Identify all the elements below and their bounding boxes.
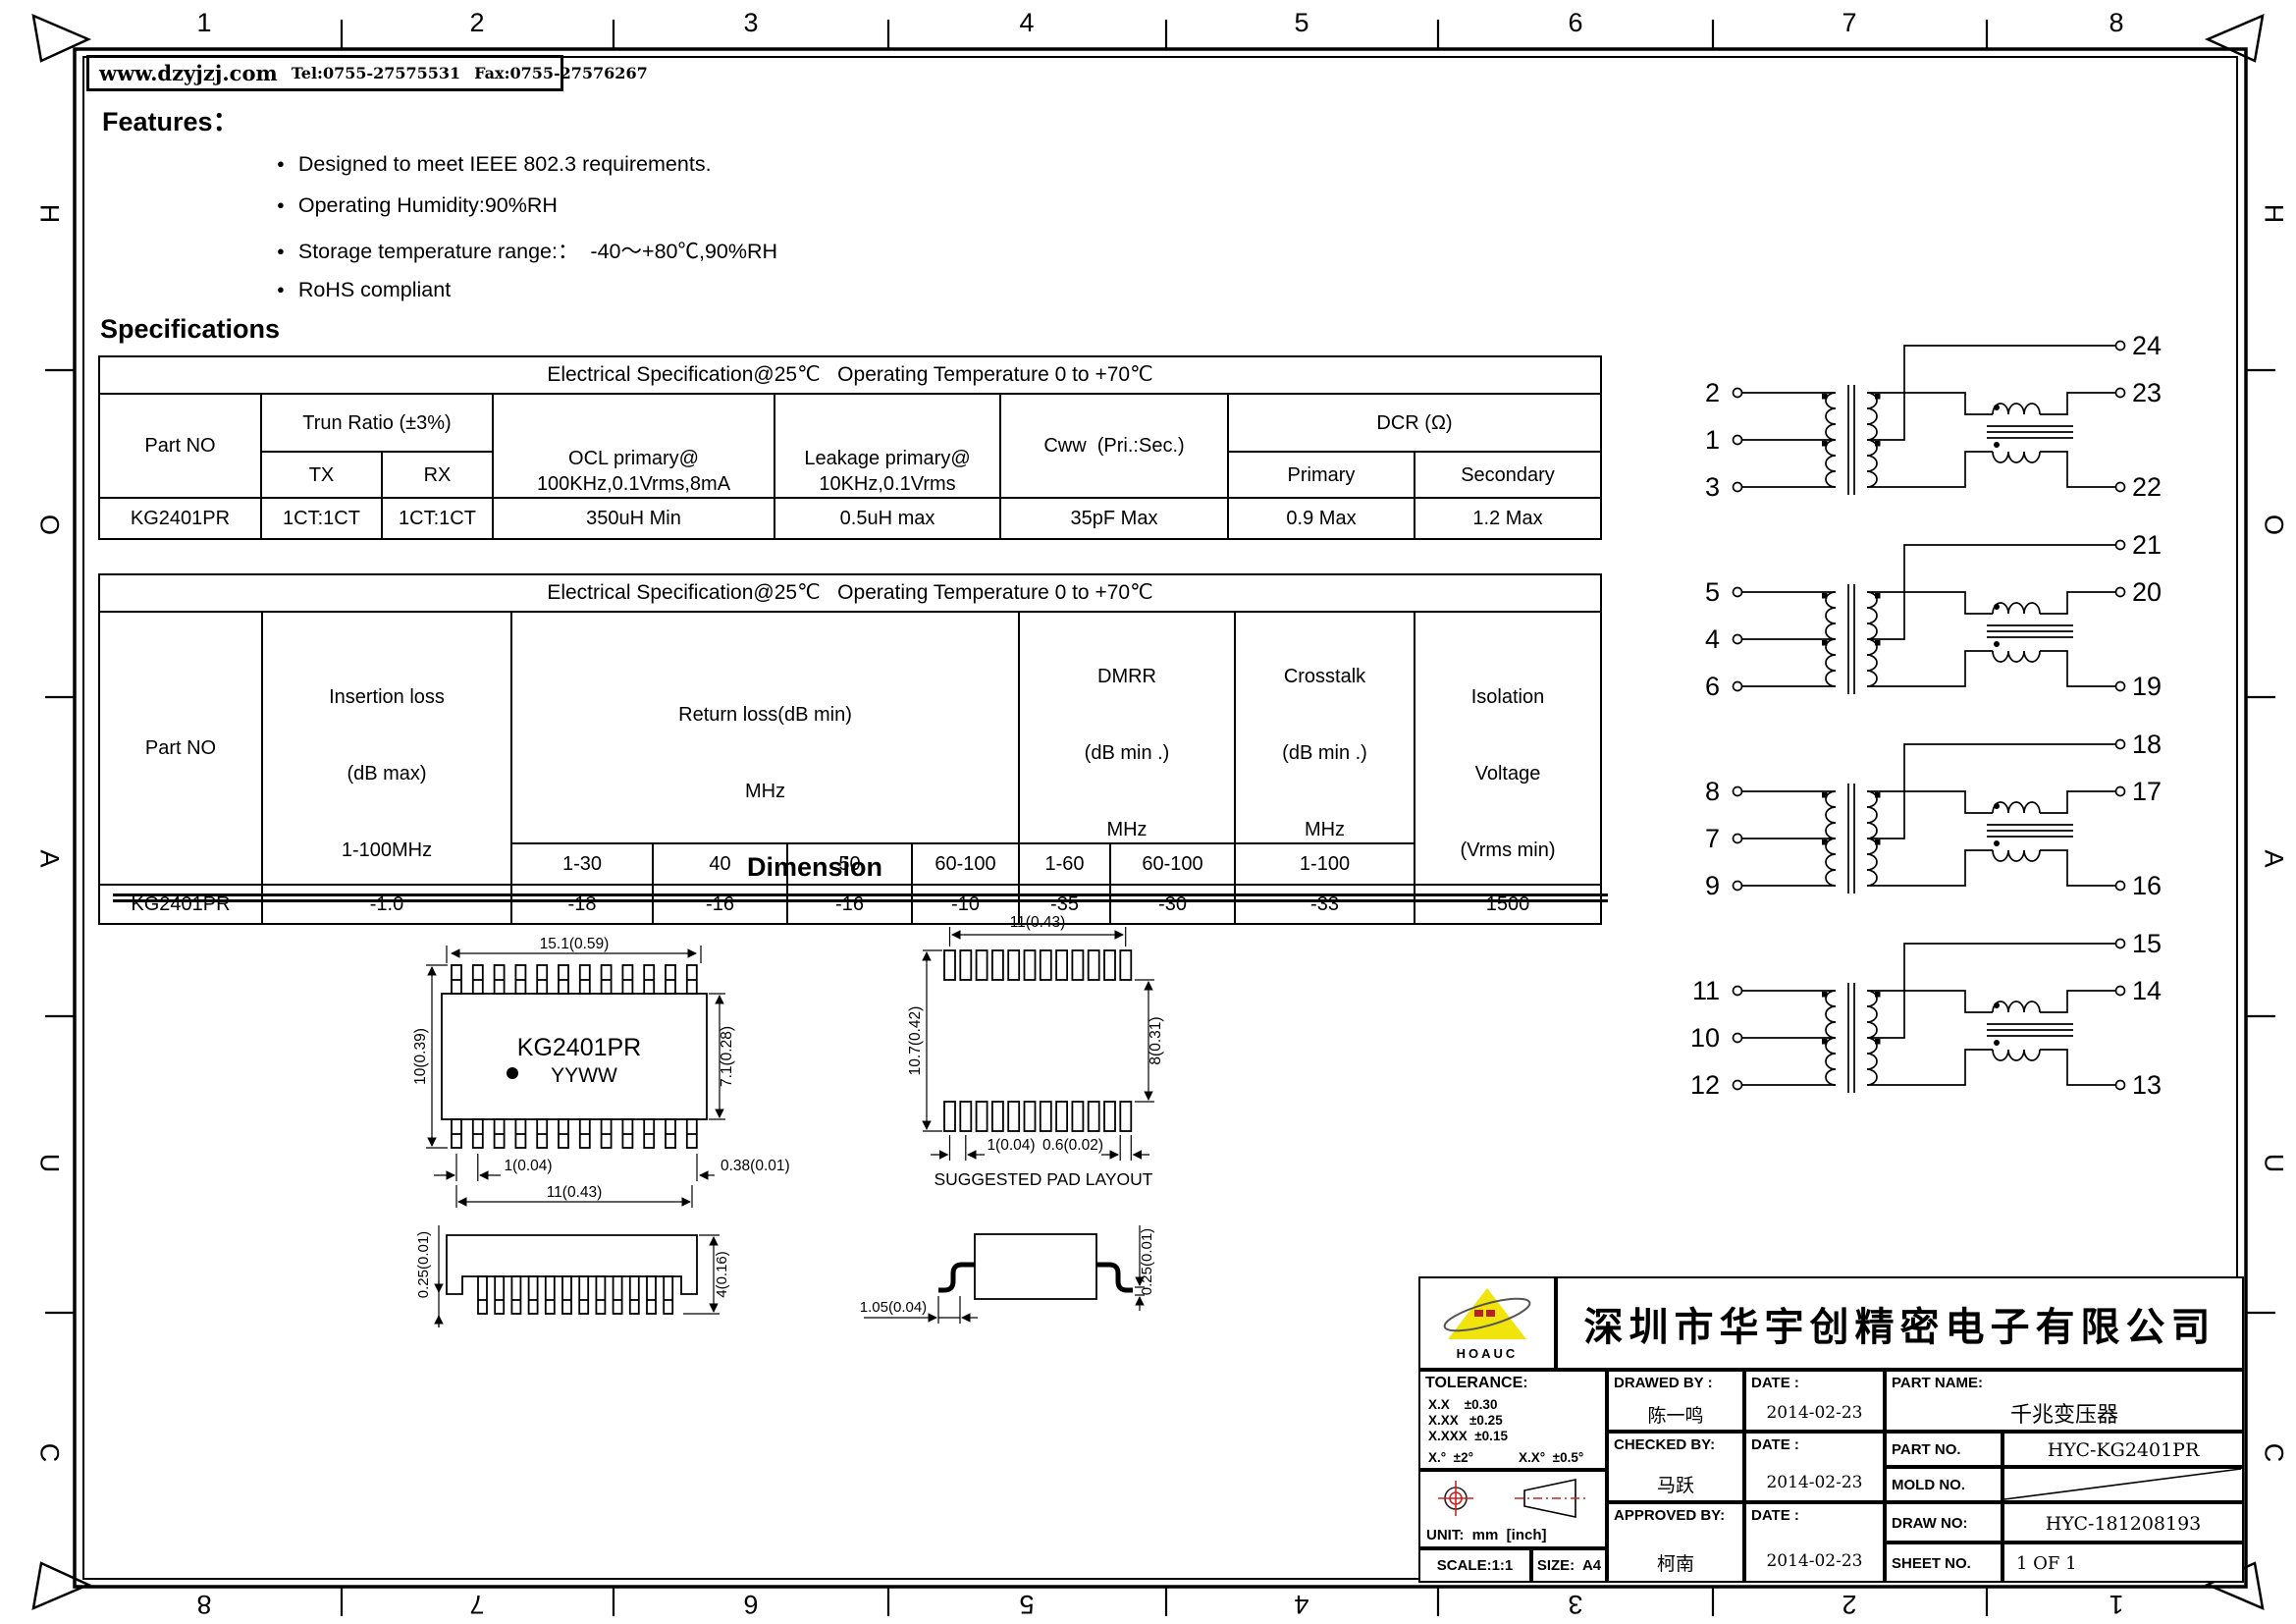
svg-text:18: 18: [2132, 730, 2162, 759]
dimension-divider: [113, 893, 1608, 902]
pin-rect: [960, 1102, 971, 1131]
table2-sub-dmrr-1-60: 1-60: [1019, 843, 1110, 885]
dim-standoff: 0.25(0.01): [415, 1231, 432, 1298]
zone-number-top: 5: [1280, 8, 1323, 38]
mold-no-value-cell: [2002, 1467, 2244, 1502]
svg-text:2: 2: [1705, 378, 1720, 407]
drawed-by-cell: DRAWED BY : 陈一鸣: [1607, 1370, 1744, 1432]
svg-text:3: 3: [1705, 472, 1720, 502]
svg-text:8: 8: [1705, 777, 1720, 806]
table1-col-part: Part NO: [99, 394, 261, 498]
svg-text:13: 13: [2132, 1070, 2162, 1100]
pin-rect: [1008, 1102, 1019, 1131]
circuit-3-pin-labels: 8 7 9 18 17 16: [1705, 730, 2162, 900]
date-3: 2014-02-23: [1746, 1551, 1883, 1571]
pin-rect: [1120, 950, 1131, 980]
svg-text:10: 10: [1690, 1023, 1720, 1053]
zone-letter-left: A: [34, 838, 65, 881]
dim-foot-length: 1.05(0.04): [860, 1299, 927, 1316]
features-heading: Features：: [102, 100, 240, 138]
dim-height: 10(0.39): [412, 1028, 429, 1085]
projection-unit-cell: UNIT: mm [inch]: [1418, 1470, 1607, 1548]
dimension-heading: Dimension: [628, 852, 1001, 883]
pin-rect: [614, 1276, 622, 1314]
blank-diagonal: [2004, 1469, 2241, 1499]
pin-rect: [944, 950, 955, 980]
table2-col-insertion: Insertion loss (dB max) 1-100MHz: [262, 612, 511, 885]
table1-col-cww: Cww (Pri.:Sec.): [1000, 394, 1228, 498]
pin-rect: [1008, 950, 1019, 980]
pin-rect: [546, 1276, 555, 1314]
zone-number-bottom: 7: [455, 1589, 499, 1619]
zone-number-top: 6: [1554, 8, 1597, 38]
svg-text:15: 15: [2132, 929, 2162, 958]
pin-rect: [511, 1276, 520, 1314]
svg-text:1: 1: [1705, 425, 1720, 455]
pad-layout-caption: SUGGESTED PAD LAYOUT: [934, 1169, 1152, 1189]
draw-no-label-cell: DRAW NO:: [1885, 1502, 2002, 1543]
dim-pad-span: 11(0.43): [1010, 914, 1066, 931]
table1-dcr-secondary-value: 1.2 Max: [1415, 498, 1601, 539]
company-name: 深圳市华宇创精密电子有限公司: [1556, 1276, 2244, 1370]
zone-number-bottom: 6: [729, 1589, 773, 1619]
part-no-label-cell: PART NO.: [1885, 1432, 2002, 1467]
table2-col-dmrr: DMRR (dB min .) MHz: [1019, 612, 1235, 843]
datasheet-page: 1 2 3 4 5 6 7 8 8 7 6 5 4 3 2 1 H O A U …: [0, 0, 2296, 1624]
table1-col-dcr: DCR (Ω): [1228, 394, 1601, 452]
zone-number-top: 3: [729, 8, 773, 38]
marking-part-number: KG2401PR: [517, 1034, 641, 1061]
pin-rect: [630, 1276, 639, 1314]
svg-text:9: 9: [1705, 871, 1720, 900]
unit-label: UNIT: mm [inch]: [1426, 1527, 1547, 1543]
table1-ocl-value: 350uH Min: [493, 498, 774, 539]
svg-text:24: 24: [2132, 331, 2162, 360]
checked-by-name: 马跃: [1609, 1471, 1742, 1497]
date-cell-1: DATE : 2014-02-23: [1744, 1370, 1885, 1432]
table2-xt-value: -33: [1235, 885, 1415, 924]
pin-rect: [596, 1276, 605, 1314]
pin-rect: [992, 950, 1003, 980]
scale-cell: SCALE:1:1: [1418, 1548, 1531, 1583]
draw-no-value-cell: HYC-181208193: [2002, 1502, 2244, 1543]
part-name-cell: PART NAME: 千兆变压器: [1885, 1370, 2244, 1432]
pin-rect: [944, 1102, 955, 1131]
pin-rect: [977, 1102, 988, 1131]
dim-span: 11(0.43): [547, 1184, 603, 1201]
pin-rect: [1056, 950, 1067, 980]
circuit-1-pin-labels: 2 1 3 24 23 22: [1705, 331, 2162, 502]
table1-col-tx: TX: [261, 452, 382, 498]
contact-box: www.dzyjzj.com Tel:0755-27575531 Fax:075…: [86, 55, 563, 91]
pin-rect: [1056, 1102, 1067, 1131]
package-top-view-drawing: 15.1(0.59) 10(0.39) 7.1(0.28) 1(0.04) 11…: [285, 918, 834, 1213]
pin-rect: [478, 1276, 487, 1314]
circuit-4-pin-labels: 11 10 12 15 14 13: [1690, 929, 2162, 1100]
svg-text:5: 5: [1705, 577, 1720, 607]
dim-width: 15.1(0.59): [540, 936, 610, 952]
svg-text:12: 12: [1690, 1070, 1720, 1100]
pin-rect: [1120, 1102, 1131, 1131]
pin-rect: [960, 950, 971, 980]
schematic-diagram: 2 1 3 24 23 22 5 4 6 21 20 19 8 7 9 18 1…: [1669, 324, 2277, 1129]
table1-part-no: KG2401PR: [99, 498, 261, 539]
specifications-heading: Specifications: [100, 314, 280, 345]
zone-letter-left: U: [34, 1142, 65, 1185]
svg-text:23: 23: [2132, 378, 2162, 407]
dim-overall-height: 4(0.16): [714, 1251, 730, 1298]
table2-isolation-value: 1500: [1415, 885, 1601, 924]
table1-dcr-primary-value: 0.9 Max: [1228, 498, 1415, 539]
zone-letter-right: H: [2259, 192, 2289, 236]
drawed-by-name: 陈一鸣: [1609, 1401, 1742, 1428]
table1-cww-value: 35pF Max: [1000, 498, 1228, 539]
pin1-dot: [507, 1067, 518, 1079]
dim-pad-pitch: 1(0.04): [987, 1137, 1035, 1154]
part-no-value-cell: HYC-KG2401PR: [2002, 1432, 2244, 1467]
dim-pin-width: 0.38(0.01): [721, 1158, 790, 1174]
table1-col-trun-ratio: Trun Ratio (±3%): [261, 394, 493, 452]
logo-cell: HOAUC: [1418, 1276, 1556, 1370]
svg-text:22: 22: [2132, 472, 2162, 502]
tolerance-cell: TOLERANCE: X.X ±0.30 X.XX ±0.25 X.XXX ±0…: [1418, 1370, 1607, 1470]
zone-number-bottom: 3: [1554, 1589, 1597, 1619]
svg-text:6: 6: [1705, 672, 1720, 701]
svg-text:16: 16: [2132, 871, 2162, 900]
zone-number-bottom: 4: [1280, 1589, 1323, 1619]
pin-rect: [977, 950, 988, 980]
pin-rect: [1072, 1102, 1083, 1131]
date-cell-2: DATE : 2014-02-23: [1744, 1432, 1885, 1502]
pin-rect: [647, 1276, 656, 1314]
svg-text:20: 20: [2132, 577, 2162, 607]
company-logo-icon: [1430, 1285, 1544, 1346]
zone-number-bottom: 5: [1005, 1589, 1048, 1619]
dim-lead-standoff: 0.25(0.01): [1139, 1228, 1155, 1295]
feature-item: RoHS compliant: [277, 278, 451, 302]
table1-title: Electrical Specification@25℃ Operating T…: [99, 356, 1601, 394]
zone-number-top: 1: [183, 8, 226, 38]
table1-tx-value: 1CT:1CT: [261, 498, 382, 539]
checked-by-cell: CHECKED BY: 马跃: [1607, 1432, 1744, 1502]
svg-text:7: 7: [1705, 824, 1720, 853]
table1-col-leakage: Leakage primary@10KHz,0.1Vrms: [774, 394, 1000, 498]
date-2: 2014-02-23: [1746, 1473, 1883, 1492]
pin-rect: [1089, 1102, 1099, 1131]
dim-pad-height: 10.7(0.42): [907, 1006, 924, 1076]
date-1: 2014-02-23: [1746, 1403, 1883, 1423]
pin-rect: [1041, 1102, 1051, 1131]
svg-text:14: 14: [2132, 976, 2162, 1005]
size-cell: SIZE: A4: [1531, 1548, 1607, 1583]
zone-letter-left: C: [34, 1432, 65, 1475]
date-cell-3: DATE : 2014-02-23: [1744, 1502, 1885, 1583]
table2-title: Electrical Specification@25℃ Operating T…: [99, 574, 1601, 612]
pin-rect: [1104, 950, 1115, 980]
zone-letter-left: O: [34, 504, 65, 547]
zone-letter-right: C: [2259, 1432, 2289, 1475]
svg-text:17: 17: [2132, 777, 2162, 806]
projection-symbol-icon: [1426, 1476, 1603, 1521]
svg-text:21: 21: [2132, 530, 2162, 560]
pin-rect: [562, 1276, 571, 1314]
table1-col-rx: RX: [382, 452, 493, 498]
pad-layout-drawing: 11(0.43) 10.7(0.42) 8(0.31) 1(0.04) 0.6(…: [913, 913, 1252, 1218]
zone-letter-left: H: [34, 192, 65, 236]
zone-number-bottom: 2: [1828, 1589, 1871, 1619]
table2-col-return-loss: Return loss(dB min) MHz: [511, 612, 1019, 843]
pin-rect: [1025, 950, 1036, 980]
svg-text:4: 4: [1705, 624, 1720, 654]
mold-no-label-cell: MOLD NO.: [1885, 1467, 2002, 1502]
table1-col-dcr-secondary: Secondary: [1415, 452, 1601, 498]
pin-rect: [1089, 950, 1099, 980]
feature-item: Operating Humidity:90%RH: [277, 193, 558, 218]
spec-table-electrical-1: Electrical Specification@25℃ Operating T…: [98, 355, 1602, 540]
zone-number-top: 8: [2095, 8, 2138, 38]
zone-number-bottom: 8: [183, 1589, 226, 1619]
table1-rx-value: 1CT:1CT: [382, 498, 493, 539]
table2-part-no: KG2401PR: [99, 885, 262, 924]
feature-item: Designed to meet IEEE 802.3 requirements…: [277, 152, 712, 177]
fax-number: Fax:0755-27576267: [474, 64, 648, 82]
dim-pitch: 1(0.04): [504, 1158, 552, 1174]
zone-number-top: 2: [455, 8, 499, 38]
pin-rect: [664, 1276, 672, 1314]
pin-rect: [1041, 950, 1051, 980]
pin-rect: [1072, 950, 1083, 980]
table2-col-crosstalk: Crosstalk (dB min .) MHz: [1235, 612, 1415, 843]
zone-letter-right: U: [2259, 1142, 2289, 1185]
pin-rect: [1104, 1102, 1115, 1131]
package-front-view-drawing: 0.25(0.01) 4(0.16): [290, 1218, 790, 1350]
dim-pad-width: 0.6(0.02): [1042, 1137, 1103, 1154]
table1-leakage-value: 0.5uH max: [774, 498, 1000, 539]
pin-rect: [579, 1276, 588, 1314]
pin-rect: [529, 1276, 538, 1314]
pin-rect: [992, 1102, 1003, 1131]
dim-pad-inner-height: 8(0.31): [1148, 1016, 1164, 1064]
package-side-view-drawing: 1.05(0.04) 0.25(0.01): [844, 1218, 1266, 1350]
zone-number-top: 7: [1828, 8, 1871, 38]
approved-by-name: 柯南: [1609, 1549, 1742, 1576]
sheet-no-value-cell: 1 OF 1: [2002, 1543, 2244, 1583]
part-name-value: 千兆变压器: [1887, 1397, 2242, 1429]
zone-number-bottom: 1: [2095, 1589, 2138, 1619]
svg-text:19: 19: [2132, 672, 2162, 701]
approved-by-cell: APPROVED BY: 柯南: [1607, 1502, 1744, 1583]
table2-col-part: Part NO: [99, 612, 262, 885]
pin-rect: [495, 1276, 504, 1314]
title-block: HOAUC 深圳市华宇创精密电子有限公司 TOLERANCE: X.X ±0.3…: [1418, 1276, 2244, 1583]
dim-body-height: 7.1(0.28): [719, 1026, 735, 1087]
feature-item: Storage temperature range:： -40～+80℃,90%…: [277, 235, 777, 265]
table2-col-isolation: Isolation Voltage (Vrms min): [1415, 612, 1601, 885]
zone-number-top: 4: [1005, 8, 1048, 38]
table1-col-dcr-primary: Primary: [1228, 452, 1415, 498]
logo-text: HOAUC: [1457, 1346, 1519, 1361]
marking-date-code: YYWW: [551, 1064, 617, 1087]
table2-sub-dmrr-60-100: 60-100: [1110, 843, 1235, 885]
table1-data-row: KG2401PR 1CT:1CT 1CT:1CT 350uH Min 0.5uH…: [99, 498, 1601, 539]
svg-text:11: 11: [1692, 976, 1720, 1005]
circuit-2-pin-labels: 5 4 6 21 20 19: [1705, 530, 2162, 701]
sheet-no-label-cell: SHEET NO.: [1885, 1543, 2002, 1583]
telephone: Tel:0755-27575531: [292, 64, 460, 82]
table1-col-ocl: OCL primary@100KHz,0.1Vrms,8mA: [493, 394, 774, 498]
pin-rect: [1025, 1102, 1036, 1131]
website: www.dzyjzj.com: [99, 61, 278, 85]
table2-sub-crosstalk-1-100: 1-100: [1235, 843, 1415, 885]
